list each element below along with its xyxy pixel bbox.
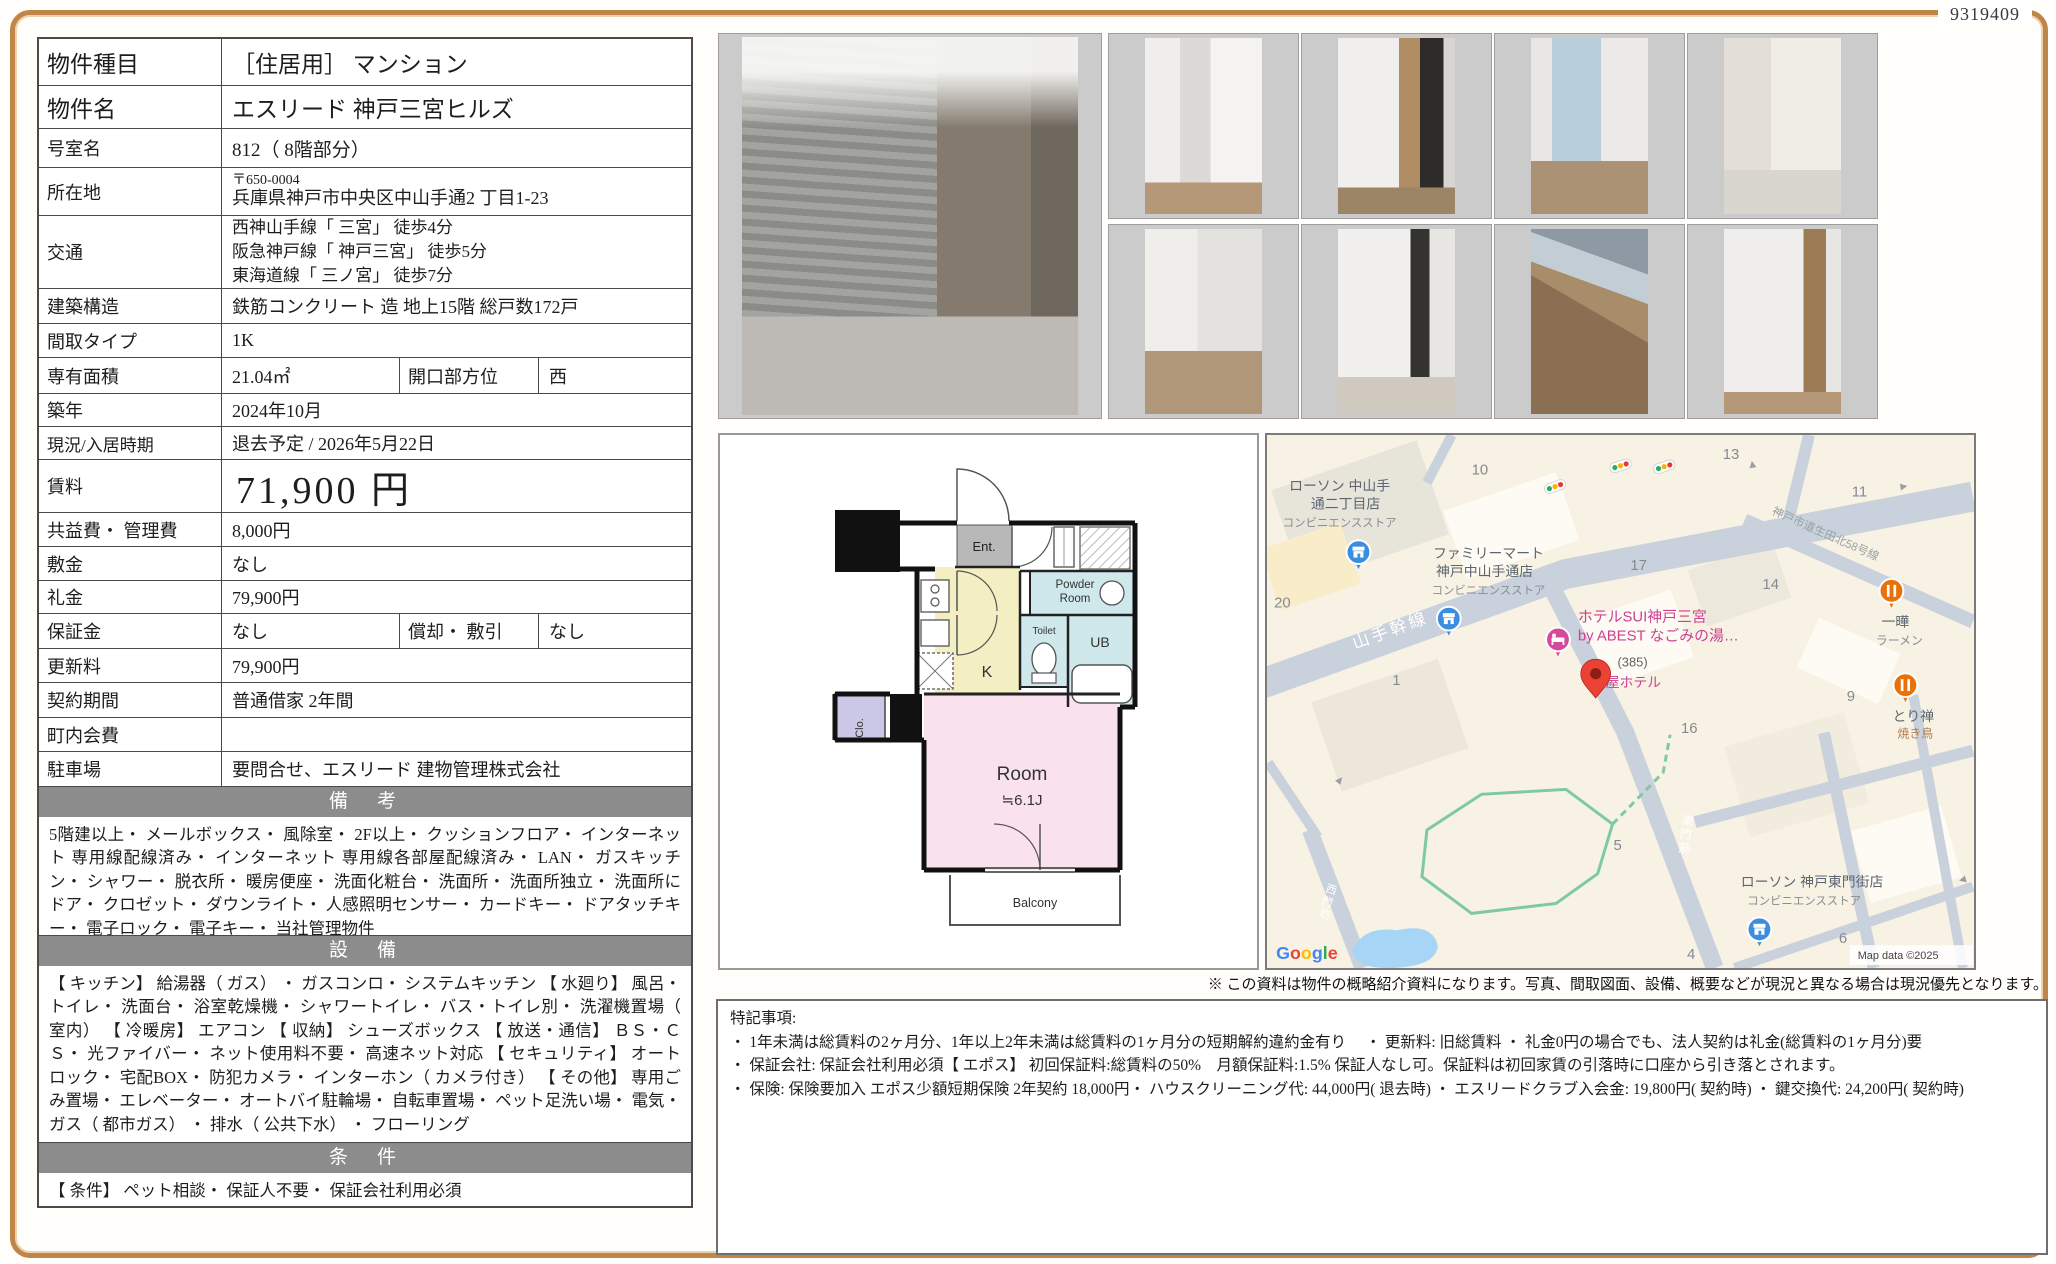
row-value: 79,900円 xyxy=(222,581,691,613)
rent-amount: 71,900 円 xyxy=(222,460,691,512)
fp-label-kitchen: K xyxy=(982,664,993,681)
fp-label-toilet: Toilet xyxy=(1032,626,1056,637)
poi-category: コンビニエンスストア xyxy=(1283,516,1397,529)
row-value: なし xyxy=(222,614,399,648)
row-label: 礼金 xyxy=(39,581,222,613)
photo-kitchen xyxy=(1301,33,1492,219)
access-line: 阪急神戸線「 神戸三宮」 徒歩5分 xyxy=(232,240,487,264)
poi-category: コンビニエンスストア xyxy=(1747,894,1861,907)
row-label: 駐車場 xyxy=(39,752,222,786)
floorplan-box: Ent. Powder Room Toilet UB K Clo. Room ≒… xyxy=(718,433,1259,970)
block-number: 16 xyxy=(1681,721,1698,737)
poi-name: 屋ホテル xyxy=(1606,674,1662,690)
table-row: 物件名 エスリード 神戸三宮ヒルズ xyxy=(39,85,691,128)
row-value: エスリード 神戸三宮ヒルズ xyxy=(222,86,691,128)
address-text: 兵庫県神戸市中央区中山手通2 丁目1-23 xyxy=(232,188,549,210)
table-row: 号室名 812（ 8階部分） xyxy=(39,128,691,167)
postal-code: 〒650-0004 xyxy=(232,173,300,188)
poi-ref: (385) xyxy=(1618,654,1648,669)
property-table: 物件種目 ［住居用］ マンション 物件名 エスリード 神戸三宮ヒルズ 号室名 8… xyxy=(37,37,693,1208)
row-value: 812（ 8階部分） xyxy=(222,129,691,167)
table-row: 町内会費 xyxy=(39,717,691,751)
google-logo: Google xyxy=(1276,943,1338,963)
fp-label-entrance: Ent. xyxy=(972,539,995,554)
poi-name: 神戸中山手通店 xyxy=(1436,563,1533,579)
photo-washroom xyxy=(1687,224,1878,419)
row-value: 要問合せ、エスリード 建物管理株式会社 xyxy=(222,752,691,786)
table-row: 保証金 なし 償却・ 敷引 なし xyxy=(39,613,691,648)
hallway-image xyxy=(1338,229,1455,414)
block-number: 10 xyxy=(1472,463,1489,479)
block-number: 1 xyxy=(1392,673,1400,689)
photo-unit-bath xyxy=(1687,33,1878,219)
fp-label-balcony: Balcony xyxy=(1013,896,1058,910)
poi-name: 通二丁目店 xyxy=(1311,495,1381,511)
access-line: 西神山手線「 三宮」 徒歩4分 xyxy=(232,216,453,240)
poi-name: ローソン 中山手 xyxy=(1289,478,1390,494)
photo-closet xyxy=(1108,33,1299,219)
notes-line: ・ 保険: 保険要加入 エポス少額短期保険 2年契約 18,000円・ ハウスク… xyxy=(730,1078,2034,1102)
row-label: 物件名 xyxy=(39,86,222,128)
row-label: 号室名 xyxy=(39,129,222,167)
fp-label-ub: UB xyxy=(1090,634,1109,650)
row-label: 建築構造 xyxy=(39,289,222,323)
photo-balcony xyxy=(1494,224,1685,419)
row-label: 敷金 xyxy=(39,547,222,580)
block-number: 20 xyxy=(1274,596,1291,612)
notes-line: ・ 保証会社: 保証会社利用必須【 エポス】 初回保証料:総賃料の50% 月額保… xyxy=(730,1054,2034,1078)
row-value: ［住居用］ マンション xyxy=(222,39,691,85)
fp-label-room-size: ≒6.1J xyxy=(1002,792,1043,809)
notes-title: 特記事項: xyxy=(730,1007,2034,1031)
table-row: 更新料 79,900円 xyxy=(39,648,691,682)
washroom-image xyxy=(1724,229,1841,414)
row-value: 21.04㎡ xyxy=(222,358,399,393)
row-label: 契約期間 xyxy=(39,683,222,717)
row-label: 交通 xyxy=(39,216,222,288)
block-number: 11 xyxy=(1852,485,1867,501)
row-label: 専有面積 xyxy=(39,358,222,393)
static-map: 山手幹線 神戸市道生田北58号線 東 門 筋 西 門 筋 10 13 11 1 xyxy=(1267,435,1974,968)
row-value: 退去予定 / 2026年5月22日 xyxy=(222,427,691,459)
equipment-text: 【 キッチン】 給湯器（ ガス） ・ ガスコンロ・ システムキッチン 【 水廻り… xyxy=(39,966,691,1142)
row-label: 間取タイプ xyxy=(39,324,222,357)
poi-category: ラーメン xyxy=(1876,633,1923,647)
row-value: 鉄筋コンクリート 造 地上15階 総戸数172戸 xyxy=(222,289,691,323)
table-row: 交通 西神山手線「 三宮」 徒歩4分 阪急神戸線「 神戸三宮」 徒歩5分 東海道… xyxy=(39,215,691,288)
fp-label-powder-1: Powder xyxy=(1056,579,1095,591)
map-attribution: Map data ©2025 xyxy=(1858,950,1939,962)
block-number: 17 xyxy=(1630,558,1647,574)
kitchen-image xyxy=(1338,38,1455,215)
row-value: 普通借家 2年間 xyxy=(222,683,691,717)
table-row: 駐車場 要問合せ、エスリード 建物管理株式会社 xyxy=(39,751,691,786)
block-number: 4 xyxy=(1687,947,1695,963)
row-label: 賃料 xyxy=(39,460,222,512)
poi-name: ホテルSUI神戸三宮 xyxy=(1578,609,1707,626)
block-number: 5 xyxy=(1614,838,1622,854)
row-label: 所在地 xyxy=(39,168,222,215)
row-label: 更新料 xyxy=(39,649,222,682)
row-label: 町内会費 xyxy=(39,718,222,751)
table-row: 専有面積 21.04㎡ 開口部方位 西 xyxy=(39,357,691,393)
row-label-2: 償却・ 敷引 xyxy=(399,614,539,648)
fp-label-closet: Clo. xyxy=(854,718,866,738)
row-label: 保証金 xyxy=(39,614,222,648)
table-row: 築年 2024年10月 xyxy=(39,393,691,426)
row-value-2: なし xyxy=(539,614,691,648)
row-value xyxy=(222,718,691,751)
photo-building-exterior xyxy=(718,33,1102,419)
row-label-2: 開口部方位 xyxy=(399,358,539,393)
section-header-equipment: 設 備 xyxy=(39,935,691,966)
row-value: 79,900円 xyxy=(222,649,691,682)
table-row: 敷金 なし xyxy=(39,546,691,580)
special-notes-box: 特記事項: ・ 1年未満は総賃料の2ヶ月分、1年以上2年未満は総賃料の1ヶ月分の… xyxy=(716,999,2048,1255)
building-exterior-image xyxy=(742,37,1078,415)
table-row: 現況/入居時期 退去予定 / 2026年5月22日 xyxy=(39,426,691,459)
floorplan-drawing: Ent. Powder Room Toilet UB K Clo. Room ≒… xyxy=(720,435,1257,968)
table-row: 共益費・ 管理費 8,000円 xyxy=(39,512,691,546)
photo-room xyxy=(1108,224,1299,419)
poi-name: by ABEST なごみの湯… xyxy=(1578,627,1739,644)
block-number: 6 xyxy=(1839,931,1847,947)
row-label: 共益費・ 管理費 xyxy=(39,513,222,546)
photo-room-window xyxy=(1494,33,1685,219)
table-row: 間取タイプ 1K xyxy=(39,323,691,357)
block-number: 9 xyxy=(1847,689,1855,705)
balcony-image xyxy=(1531,229,1648,414)
table-row: 物件種目 ［住居用］ マンション xyxy=(39,39,691,85)
room-window-image xyxy=(1531,38,1648,215)
row-label: 現況/入居時期 xyxy=(39,427,222,459)
poi-category: コンビニエンスストア xyxy=(1432,584,1546,597)
row-value: なし xyxy=(222,547,691,580)
property-sheet: 9319409 物件種目 ［住居用］ マンション 物件名 エスリード 神戸三宮ヒ… xyxy=(0,0,2056,1264)
row-value: 西神山手線「 三宮」 徒歩4分 阪急神戸線「 神戸三宮」 徒歩5分 東海道線「 … xyxy=(222,216,691,288)
table-row: 契約期間 普通借家 2年間 xyxy=(39,682,691,717)
row-value: 〒650-0004 兵庫県神戸市中央区中山手通2 丁目1-23 xyxy=(222,168,691,215)
poi-name: 一曄 xyxy=(1882,614,1910,630)
remarks-text: 5階建以上・ メールボックス・ 風除室・ 2F以上・ クッションフロア・ インタ… xyxy=(39,817,691,935)
closet-image xyxy=(1145,38,1262,215)
room-image xyxy=(1145,229,1262,414)
disclaimer-text: ※ この資料は物件の概略紹介資料になります。写真、間取図面、設備、概要などが現況… xyxy=(716,973,2048,994)
map-box: 山手幹線 神戸市道生田北58号線 東 門 筋 西 門 筋 10 13 11 1 xyxy=(1265,433,1976,970)
table-row: 礼金 79,900円 xyxy=(39,580,691,613)
poi-name: ローソン 神戸東門街店 xyxy=(1741,874,1884,890)
section-header-remarks: 備 考 xyxy=(39,786,691,817)
row-value: 8,000円 xyxy=(222,513,691,546)
section-header-conditions: 条 件 xyxy=(39,1142,691,1173)
unit-bath-image xyxy=(1724,38,1841,215)
table-row: 所在地 〒650-0004 兵庫県神戸市中央区中山手通2 丁目1-23 xyxy=(39,167,691,215)
poi-name: ファミリーマート xyxy=(1433,545,1544,561)
document-id: 9319409 xyxy=(1938,3,2032,26)
photo-hallway xyxy=(1301,224,1492,419)
row-value: 2024年10月 xyxy=(222,394,691,426)
notes-line: ・ 1年未満は総賃料の2ヶ月分、1年以上2年未満は総賃料の1ヶ月分の短期解約違約… xyxy=(730,1031,2034,1055)
row-value-2: 西 xyxy=(539,358,691,393)
conditions-text: 【 条件】 ペット相談・ 保証人不要・ 保証会社利用必須 xyxy=(39,1173,691,1206)
poi-name: とり禅 xyxy=(1892,708,1934,724)
table-row: 賃料 71,900 円 xyxy=(39,459,691,512)
block-number: 13 xyxy=(1723,447,1740,463)
fp-label-room: Room xyxy=(997,764,1048,785)
row-label: 物件種目 xyxy=(39,39,222,85)
fp-label-powder-2: Room xyxy=(1060,593,1091,605)
row-label: 築年 xyxy=(39,394,222,426)
poi-category: 焼き鳥 xyxy=(1897,727,1933,741)
block-number: 14 xyxy=(1762,577,1779,593)
table-row: 建築構造 鉄筋コンクリート 造 地上15階 総戸数172戸 xyxy=(39,288,691,323)
row-value: 1K xyxy=(222,324,691,357)
access-line: 東海道線「 三ノ宮」 徒歩7分 xyxy=(232,264,453,288)
